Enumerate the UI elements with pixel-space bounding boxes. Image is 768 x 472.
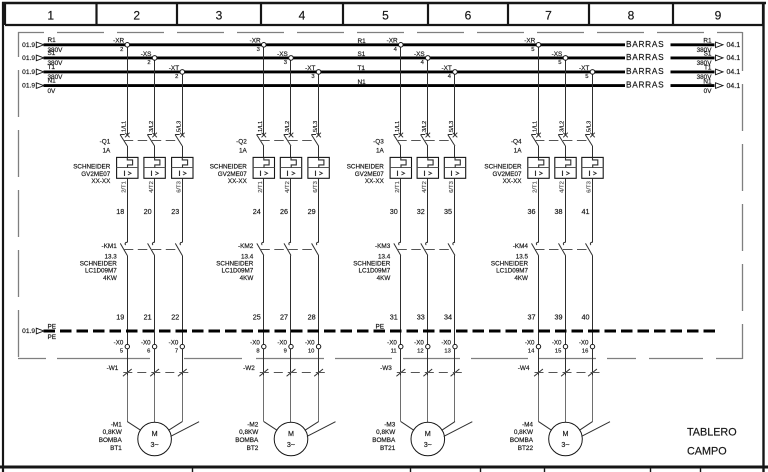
svg-text:2: 2 — [120, 47, 123, 53]
svg-text:BARRAS: BARRAS — [626, 66, 664, 76]
svg-text:01.9: 01.9 — [22, 328, 35, 335]
svg-text:-X0: -X0 — [579, 340, 589, 347]
svg-text:40: 40 — [582, 313, 590, 322]
svg-text:-XS: -XS — [141, 51, 152, 58]
svg-text:37: 37 — [528, 313, 536, 322]
svg-text:35: 35 — [444, 207, 452, 216]
svg-text:-XT: -XT — [442, 65, 452, 72]
svg-text:6: 6 — [465, 8, 472, 22]
svg-text:26: 26 — [280, 207, 288, 216]
svg-text:M: M — [152, 429, 158, 438]
svg-text:GV2ME07: GV2ME07 — [218, 171, 248, 178]
svg-text:LC1D09M7: LC1D09M7 — [496, 268, 528, 275]
svg-text:2/T1: 2/T1 — [395, 181, 401, 193]
svg-text:-W3: -W3 — [380, 365, 392, 372]
svg-text:13.4: 13.4 — [241, 254, 254, 261]
svg-text:9: 9 — [284, 349, 287, 355]
svg-text:3~: 3~ — [424, 440, 432, 449]
svg-text:3/L2: 3/L2 — [422, 121, 428, 132]
svg-text:XX-XX: XX-XX — [503, 178, 523, 185]
svg-text:14: 14 — [528, 349, 535, 355]
svg-text:34: 34 — [444, 313, 452, 322]
svg-text:1A: 1A — [514, 148, 523, 155]
svg-text:2: 2 — [133, 8, 140, 22]
svg-text:XX-XX: XX-XX — [228, 178, 248, 185]
svg-text:CAMPO: CAMPO — [687, 445, 727, 457]
svg-text:3: 3 — [284, 60, 287, 66]
svg-text:-Q3: -Q3 — [373, 139, 384, 146]
svg-text:3: 3 — [311, 74, 314, 80]
svg-text:-W2: -W2 — [243, 365, 255, 372]
svg-text:PE: PE — [48, 334, 57, 341]
svg-text:29: 29 — [308, 207, 316, 216]
svg-text:4KW: 4KW — [240, 275, 254, 282]
svg-text:4KW: 4KW — [103, 275, 117, 282]
svg-text:-XR: -XR — [524, 38, 535, 45]
svg-text:30: 30 — [390, 207, 398, 216]
svg-text:25: 25 — [253, 313, 261, 322]
svg-text:10: 10 — [308, 349, 314, 355]
svg-text:BOMBA: BOMBA — [372, 437, 396, 444]
svg-text:S1: S1 — [358, 51, 366, 58]
svg-text:0,8KW: 0,8KW — [376, 429, 396, 436]
svg-text:5: 5 — [382, 8, 389, 22]
svg-text:GV2ME07: GV2ME07 — [355, 171, 385, 178]
svg-text:-XT: -XT — [169, 65, 179, 72]
svg-text:13.4: 13.4 — [378, 254, 391, 261]
svg-text:1/L1: 1/L1 — [533, 121, 539, 132]
svg-text:9: 9 — [715, 8, 722, 22]
svg-text:3~: 3~ — [561, 440, 569, 449]
svg-text:-M4: -M4 — [522, 421, 533, 428]
svg-text:3~: 3~ — [287, 440, 295, 449]
svg-text:-KM3: -KM3 — [375, 243, 391, 250]
svg-text:4/T2: 4/T2 — [149, 181, 155, 193]
svg-text:N1: N1 — [703, 78, 712, 85]
svg-text:31: 31 — [390, 313, 398, 322]
svg-text:BOMBA: BOMBA — [99, 437, 123, 444]
svg-text:7: 7 — [545, 8, 552, 22]
svg-text:33: 33 — [417, 313, 425, 322]
svg-text:5/L3: 5/L3 — [449, 121, 455, 132]
svg-text:-KM4: -KM4 — [513, 243, 529, 250]
svg-text:SCHNEIDER: SCHNEIDER — [80, 261, 118, 268]
svg-text:0V: 0V — [48, 88, 57, 95]
svg-text:BT2: BT2 — [247, 445, 259, 452]
svg-text:LC1D09M7: LC1D09M7 — [221, 268, 253, 275]
svg-text:36: 36 — [528, 207, 536, 216]
svg-text:22: 22 — [171, 313, 179, 322]
svg-text:6/T3: 6/T3 — [177, 181, 183, 193]
svg-text:4KW: 4KW — [377, 275, 391, 282]
svg-text:8: 8 — [256, 349, 259, 355]
svg-text:2/T1: 2/T1 — [533, 181, 539, 193]
svg-text:-X0: -X0 — [305, 340, 315, 347]
svg-text:-X0: -X0 — [387, 340, 397, 347]
svg-text:04.1: 04.1 — [727, 55, 741, 62]
svg-text:13.3: 13.3 — [105, 254, 118, 261]
svg-text:04.1: 04.1 — [727, 42, 741, 49]
svg-text:23: 23 — [171, 207, 179, 216]
svg-text:0,8KW: 0,8KW — [514, 429, 534, 436]
svg-text:-X0: -X0 — [414, 340, 424, 347]
svg-text:15: 15 — [555, 349, 561, 355]
svg-text:-Q4: -Q4 — [511, 139, 522, 146]
svg-text:-X0: -X0 — [552, 340, 562, 347]
svg-text:04.1: 04.1 — [727, 69, 741, 76]
svg-text:-M2: -M2 — [247, 421, 258, 428]
svg-text:3/L2: 3/L2 — [285, 121, 291, 132]
svg-text:-M1: -M1 — [111, 421, 122, 428]
svg-text:11: 11 — [391, 349, 397, 355]
svg-text:6/T3: 6/T3 — [587, 181, 593, 193]
svg-text:4/T2: 4/T2 — [560, 181, 566, 193]
svg-text:T1: T1 — [704, 65, 712, 72]
svg-text:BOMBA: BOMBA — [510, 437, 534, 444]
svg-text:-X0: -X0 — [250, 340, 260, 347]
svg-text:4/T2: 4/T2 — [285, 181, 291, 193]
svg-text:28: 28 — [308, 313, 316, 322]
svg-text:SCHNEIDER: SCHNEIDER — [216, 261, 254, 268]
svg-text:BOMBA: BOMBA — [235, 437, 259, 444]
svg-text:3/L2: 3/L2 — [560, 121, 566, 132]
svg-text:0,8KW: 0,8KW — [103, 429, 123, 436]
svg-text:1A: 1A — [102, 148, 111, 155]
svg-text:4: 4 — [299, 8, 306, 22]
svg-text:LC1D09M7: LC1D09M7 — [358, 268, 390, 275]
svg-text:N1: N1 — [358, 79, 367, 86]
svg-text:2: 2 — [175, 74, 178, 80]
svg-text:S1: S1 — [48, 50, 56, 57]
svg-text:-XT: -XT — [305, 65, 315, 72]
svg-text:-KM2: -KM2 — [238, 243, 254, 250]
svg-text:T1: T1 — [358, 65, 366, 72]
svg-text:-X0: -X0 — [441, 340, 451, 347]
svg-text:M: M — [288, 429, 294, 438]
svg-text:TABLERO: TABLERO — [687, 426, 737, 438]
svg-text:3/L2: 3/L2 — [149, 121, 155, 132]
svg-text:-X0: -X0 — [525, 340, 535, 347]
svg-text:SCHNEIDER: SCHNEIDER — [347, 164, 385, 171]
svg-text:-Q2: -Q2 — [236, 139, 247, 146]
svg-text:5/L3: 5/L3 — [313, 121, 319, 132]
svg-text:R1: R1 — [703, 38, 712, 45]
svg-text:19: 19 — [116, 313, 124, 322]
svg-text:BARRAS: BARRAS — [626, 80, 664, 90]
svg-text:5: 5 — [120, 349, 123, 355]
svg-text:-X0: -X0 — [277, 340, 287, 347]
svg-text:1A: 1A — [239, 148, 248, 155]
svg-text:N1: N1 — [48, 78, 57, 85]
svg-text:-XT: -XT — [579, 65, 589, 72]
svg-text:0V: 0V — [704, 88, 713, 95]
svg-text:4/T2: 4/T2 — [422, 181, 428, 193]
svg-text:GV2ME07: GV2ME07 — [492, 171, 522, 178]
svg-text:-XR: -XR — [250, 38, 261, 45]
svg-text:SCHNEIDER: SCHNEIDER — [484, 164, 522, 171]
svg-text:21: 21 — [144, 313, 152, 322]
svg-text:BT21: BT21 — [380, 445, 396, 452]
svg-text:R1: R1 — [48, 37, 57, 44]
svg-text:S1: S1 — [704, 51, 712, 58]
svg-text:5/L3: 5/L3 — [177, 121, 183, 132]
svg-text:1/L1: 1/L1 — [122, 121, 128, 132]
svg-text:-XS: -XS — [552, 51, 563, 58]
svg-text:BARRAS: BARRAS — [626, 39, 664, 49]
svg-text:13.5: 13.5 — [516, 254, 529, 261]
svg-text:1/L1: 1/L1 — [395, 121, 401, 132]
svg-text:-X0: -X0 — [114, 340, 124, 347]
svg-text:-KM1: -KM1 — [102, 243, 118, 250]
svg-text:01.9: 01.9 — [22, 42, 35, 49]
svg-text:1/L1: 1/L1 — [258, 121, 264, 132]
svg-text:-Q1: -Q1 — [100, 139, 111, 146]
svg-text:38: 38 — [555, 207, 563, 216]
svg-text:M: M — [425, 429, 431, 438]
svg-text:0,8KW: 0,8KW — [239, 429, 259, 436]
svg-text:T1: T1 — [48, 64, 56, 71]
svg-text:-W4: -W4 — [518, 365, 530, 372]
svg-text:BT22: BT22 — [518, 445, 534, 452]
svg-text:XX-XX: XX-XX — [91, 178, 111, 185]
svg-text:SCHNEIDER: SCHNEIDER — [210, 164, 248, 171]
svg-text:R1: R1 — [358, 38, 367, 45]
svg-text:2: 2 — [147, 60, 150, 66]
svg-text:01.9: 01.9 — [22, 69, 35, 76]
svg-text:18: 18 — [116, 207, 124, 216]
svg-text:27: 27 — [280, 313, 288, 322]
svg-text:BARRAS: BARRAS — [626, 52, 664, 62]
svg-text:2/T1: 2/T1 — [258, 181, 264, 193]
svg-text:-W1: -W1 — [107, 365, 119, 372]
svg-text:13: 13 — [444, 349, 450, 355]
svg-text:SCHNEIDER: SCHNEIDER — [491, 261, 529, 268]
svg-text:32: 32 — [417, 207, 425, 216]
svg-text:SCHNEIDER: SCHNEIDER — [73, 164, 111, 171]
svg-text:5: 5 — [558, 60, 561, 66]
svg-text:-XS: -XS — [277, 51, 288, 58]
svg-text:SCHNEIDER: SCHNEIDER — [353, 261, 391, 268]
svg-text:-X0: -X0 — [169, 340, 179, 347]
svg-text:M: M — [563, 429, 569, 438]
svg-text:6/T3: 6/T3 — [449, 181, 455, 193]
svg-text:24: 24 — [253, 207, 261, 216]
svg-text:1: 1 — [47, 8, 54, 22]
svg-text:-XR: -XR — [387, 38, 398, 45]
svg-text:8: 8 — [628, 8, 635, 22]
svg-text:BT1: BT1 — [110, 445, 122, 452]
svg-text:6/T3: 6/T3 — [313, 181, 319, 193]
svg-text:12: 12 — [417, 349, 423, 355]
svg-text:16: 16 — [582, 349, 588, 355]
svg-text:-M3: -M3 — [384, 421, 395, 428]
svg-text:2/T1: 2/T1 — [122, 181, 128, 193]
svg-text:PE: PE — [48, 324, 57, 331]
svg-text:39: 39 — [555, 313, 563, 322]
svg-text:01.9: 01.9 — [22, 83, 35, 90]
svg-text:3: 3 — [257, 47, 260, 53]
svg-text:LC1D09M7: LC1D09M7 — [85, 268, 117, 275]
svg-text:1A: 1A — [376, 148, 385, 155]
svg-text:20: 20 — [144, 207, 152, 216]
svg-text:5: 5 — [585, 74, 588, 80]
svg-text:XX-XX: XX-XX — [365, 178, 385, 185]
svg-text:-XR: -XR — [113, 38, 124, 45]
svg-text:GV2ME07: GV2ME07 — [81, 171, 111, 178]
svg-text:3~: 3~ — [150, 440, 158, 449]
svg-text:7: 7 — [175, 349, 178, 355]
svg-text:3: 3 — [216, 8, 223, 22]
svg-text:-XS: -XS — [414, 51, 425, 58]
svg-text:-X0: -X0 — [141, 340, 151, 347]
svg-text:4KW: 4KW — [514, 275, 528, 282]
svg-text:5/L3: 5/L3 — [587, 121, 593, 132]
svg-text:PE: PE — [376, 323, 385, 330]
svg-text:41: 41 — [582, 207, 590, 216]
svg-text:6: 6 — [147, 349, 150, 355]
svg-text:04.1: 04.1 — [727, 83, 741, 90]
svg-text:5: 5 — [531, 47, 534, 53]
svg-text:01.9: 01.9 — [22, 55, 35, 62]
